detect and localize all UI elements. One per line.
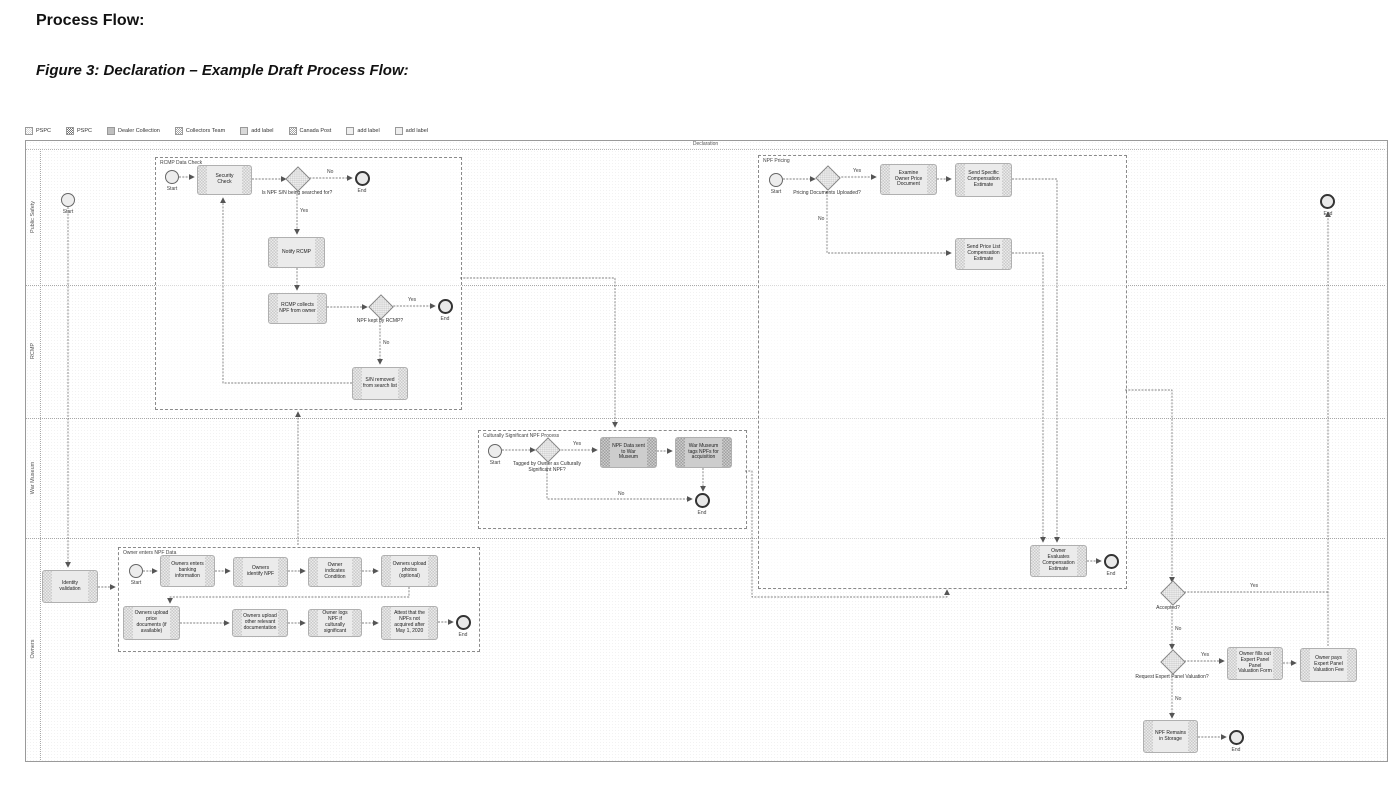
checker-light-swatch-icon <box>25 127 33 135</box>
start-event <box>488 444 502 458</box>
task-label: Owner logs NPF if culturally significant <box>319 611 351 635</box>
task-label: Owners upload photos (optional) <box>392 562 427 580</box>
legend-label: add label <box>251 128 273 134</box>
event-label: End <box>1314 211 1342 217</box>
task-label: Identity validation <box>53 581 87 593</box>
end-event <box>1320 194 1335 209</box>
end-event <box>456 615 471 630</box>
task-label: S/N removed from search list <box>363 378 397 390</box>
solid-light-swatch-icon <box>240 127 248 135</box>
task-send-specific-estimate: Send Specific Compensation Estimate <box>955 163 1012 197</box>
lane-label-strip <box>40 149 41 760</box>
event-label: Start <box>481 460 509 466</box>
checker-mid-swatch-icon <box>289 127 297 135</box>
edge-label-yes: Yes <box>300 208 308 214</box>
task-owner-logs-npf: Owner logs NPF if culturally significant <box>308 609 362 637</box>
event-label: Start <box>54 209 82 215</box>
event-label: End <box>1222 747 1250 753</box>
legend-item-add-label-1[interactable]: add label <box>240 127 273 135</box>
legend-label: PSPC <box>77 128 92 134</box>
gateway-label: Accepted? <box>1137 605 1199 611</box>
legend-label: Canada Post <box>300 128 332 134</box>
legend-label: add label <box>357 128 379 134</box>
checker-dark-swatch-icon <box>66 127 74 135</box>
task-security-check: Security Check <box>197 165 252 195</box>
event-label: End <box>688 510 716 516</box>
edge-label-yes: Yes <box>1250 583 1258 589</box>
figure-caption: Figure 3: Declaration – Example Draft Pr… <box>36 62 409 79</box>
task-label: Security Check <box>208 174 241 186</box>
task-label: Examine Owner Price Document <box>891 171 926 189</box>
legend-label: Dealer Collection <box>118 128 160 134</box>
edge-label-yes: Yes <box>1201 652 1209 658</box>
task-label: NPF Data sent to War Museum <box>611 444 646 462</box>
task-owner-fills-valuation-form: Owner fills out Expert Panel Panel Valua… <box>1227 647 1283 680</box>
task-owner-evaluates-estimate: Owner Evaluates Compensation Estimate <box>1030 545 1087 577</box>
event-label: Start <box>762 189 790 195</box>
edge-label-no: No <box>1175 696 1181 702</box>
gateway-label: Tagged by Owner as Culturally Significan… <box>509 461 585 473</box>
lane-label-war-museum: War Museum <box>30 462 36 495</box>
edge-label-yes: Yes <box>853 168 861 174</box>
event-label: End <box>431 316 459 322</box>
task-npf-data-sent-war-museum: NPF Data sent to War Museum <box>600 437 657 468</box>
lane-label-public-safety: Public Safety <box>30 201 36 233</box>
gateway-label: Request Expert Panel Valuation? <box>1134 674 1210 680</box>
legend-item-pspc-2[interactable]: PSPC <box>66 127 92 135</box>
start-event <box>129 564 143 578</box>
subprocess-npf-pricing: NPF Pricing <box>758 155 1127 589</box>
end-event <box>1229 730 1244 745</box>
legend-item-collectors-team[interactable]: Collectors Team <box>175 127 225 135</box>
lane-divider <box>26 538 1385 539</box>
end-event <box>1104 554 1119 569</box>
task-owner-upload-photos: Owners upload photos (optional) <box>381 555 438 587</box>
pool-title: Declaration <box>26 141 1385 150</box>
task-owner-pays-valuation-fee: Owner pays Expert Panel Valuation Fee <box>1300 648 1357 682</box>
gateway-label: NPF kept by RCMP? <box>343 318 417 324</box>
task-npf-remains-storage: NPF Remains in Storage <box>1143 720 1198 753</box>
lane-label-owners: Owners <box>30 640 36 659</box>
start-event <box>165 170 179 184</box>
legend-item-add-label-3[interactable]: add label <box>395 127 428 135</box>
edge-label-yes: Yes <box>408 297 416 303</box>
task-label: Attest that the NPFs not acquired after … <box>392 611 427 635</box>
task-owner-banking-info: Owners enters banking information <box>160 555 215 587</box>
task-label: Send Specific Compensation Estimate <box>966 171 1001 189</box>
legend-item-pspc-1[interactable]: PSPC <box>25 127 51 135</box>
edge-label-no: No <box>818 216 824 222</box>
task-label: NPF Remains in Storage <box>1154 731 1187 743</box>
task-label: Notify RCMP <box>282 250 311 256</box>
task-label: Owner fills out Expert Panel Panel Valua… <box>1238 652 1272 676</box>
task-label: Owner indicates Condition <box>319 563 351 581</box>
dotted-light-swatch-icon <box>346 127 354 135</box>
task-label: Owner Evaluates Compensation Estimate <box>1041 549 1076 573</box>
legend-label: Collectors Team <box>186 128 225 134</box>
legend-label: PSPC <box>36 128 51 134</box>
gateway-label: Pricing Documents Uploaded? <box>790 190 864 196</box>
dotted-light-swatch-icon <box>395 127 403 135</box>
edge-label-no: No <box>1175 626 1181 632</box>
legend-item-add-label-2[interactable]: add label <box>346 127 379 135</box>
task-owner-attest: Attest that the NPFs not acquired after … <box>381 606 438 640</box>
lane-divider <box>26 418 1385 419</box>
task-identity-validation: Identity validation <box>42 570 98 603</box>
end-event <box>438 299 453 314</box>
start-event <box>769 173 783 187</box>
subprocess-title: RCMP Data Check <box>160 160 202 166</box>
event-label: Start <box>158 186 186 192</box>
page-title: Process Flow: <box>36 12 144 30</box>
task-owner-upload-price-docs: Owners upload price documents (if availa… <box>123 606 180 640</box>
task-label: Owner pays Expert Panel Valuation Fee <box>1311 656 1346 674</box>
edge-label-yes: Yes <box>573 441 581 447</box>
task-war-museum-tags: War Museum tags NPFs for acquisition <box>675 437 732 468</box>
task-examine-owner-price: Examine Owner Price Document <box>880 164 937 195</box>
task-label: War Museum tags NPFs for acquisition <box>686 444 721 462</box>
event-label: Start <box>122 580 150 586</box>
task-label: Owners enters banking information <box>171 562 204 580</box>
legend-item-canada-post[interactable]: Canada Post <box>289 127 332 135</box>
task-label: RCMP collects NPF from owner <box>279 303 316 315</box>
legend-item-dealer-collection[interactable]: Dealer Collection <box>107 127 160 135</box>
end-event <box>695 493 710 508</box>
event-label: End <box>348 188 376 194</box>
legend-label: add label <box>406 128 428 134</box>
edge-label-no: No <box>383 340 389 346</box>
gateway-label: Is NPF S/N being searched for? <box>260 190 334 196</box>
task-label: Send Price List Compensation Estimate <box>966 245 1001 263</box>
end-event <box>355 171 370 186</box>
event-label: End <box>1097 571 1125 577</box>
task-send-price-list-estimate: Send Price List Compensation Estimate <box>955 238 1012 270</box>
task-label: Owners upload other relevant documentati… <box>243 614 277 632</box>
solid-gray-swatch-icon <box>107 127 115 135</box>
task-label: Owners identify NPF <box>244 566 277 578</box>
event-label: End <box>449 632 477 638</box>
edge-label-no: No <box>618 491 624 497</box>
task-notify-rcmp: Notify RCMP <box>268 237 325 268</box>
document-page: Process Flow: Figure 3: Declaration – Ex… <box>0 0 1390 789</box>
checker-mid-swatch-icon <box>175 127 183 135</box>
legend: PSPC PSPC Dealer Collection Collectors T… <box>25 127 428 135</box>
task-owner-indicates-condition: Owner indicates Condition <box>308 557 362 587</box>
task-rcmp-collects-npf: RCMP collects NPF from owner <box>268 293 327 324</box>
lane-label-rcmp: RCMP <box>30 343 36 359</box>
task-owner-identify-npf: Owners identify NPF <box>233 557 288 587</box>
task-sn-removed: S/N removed from search list <box>352 367 408 400</box>
task-label: Owners upload price documents (if availa… <box>134 611 169 635</box>
start-event <box>61 193 75 207</box>
subprocess-title: NPF Pricing <box>763 158 790 164</box>
task-owner-upload-other-docs: Owners upload other relevant documentati… <box>232 609 288 637</box>
edge-label-no: No <box>327 169 333 175</box>
